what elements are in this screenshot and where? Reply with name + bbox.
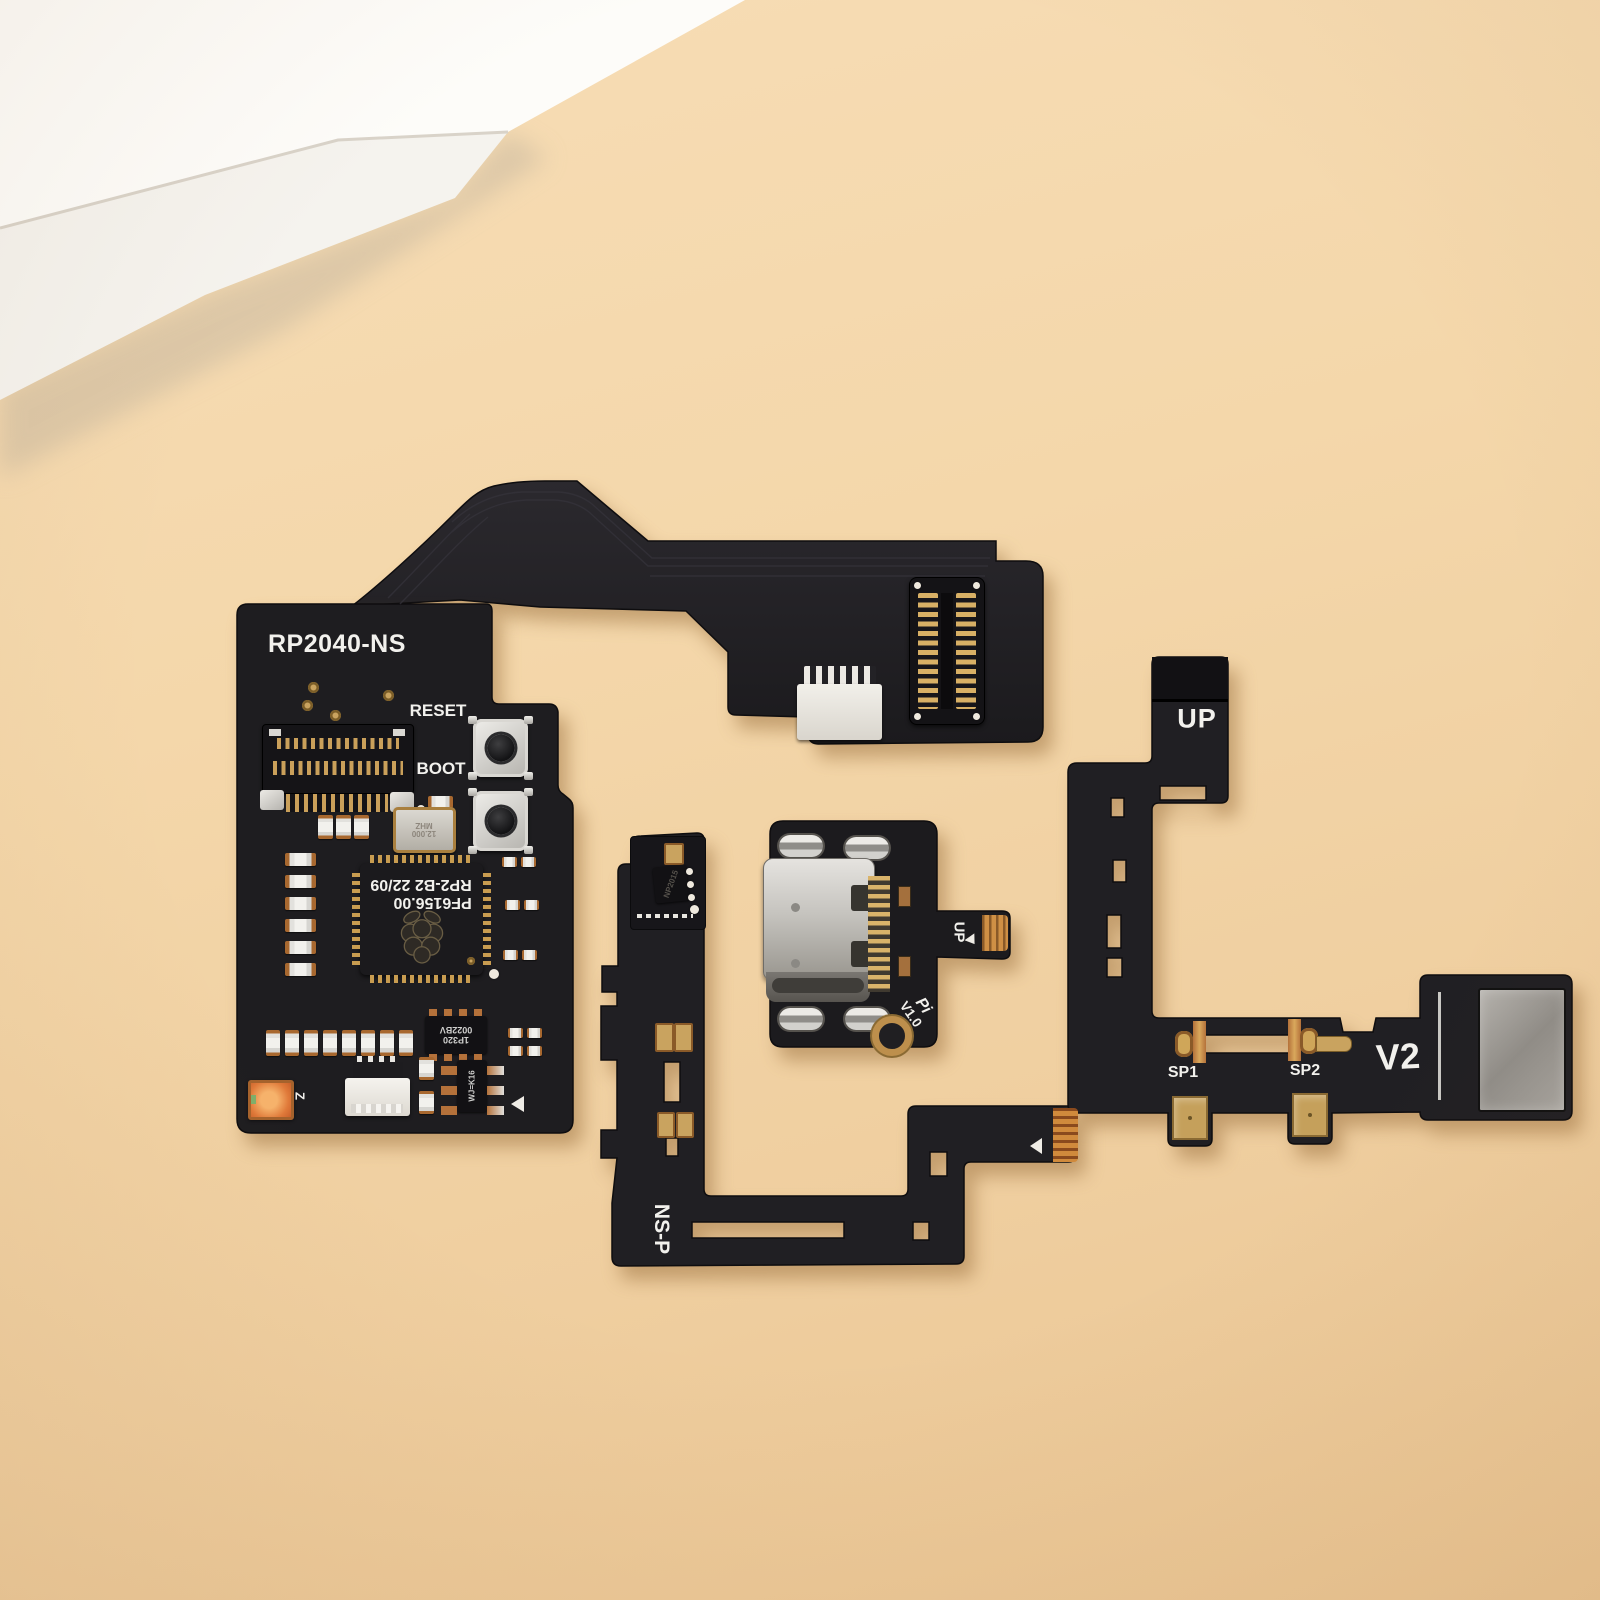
silkscreen-dashes	[637, 914, 693, 918]
smd-resistor	[524, 900, 539, 910]
mount-pad	[779, 1008, 823, 1030]
smd-resistor	[285, 875, 316, 888]
silkscreen-line	[1438, 992, 1441, 1100]
smd-capacitor	[419, 1057, 434, 1080]
v2-version-label: V2	[1375, 1035, 1421, 1079]
gold-fingers-usbc-tail	[982, 915, 1008, 951]
board-shapes	[0, 0, 1600, 1600]
connector-tab	[269, 729, 281, 736]
connector-pins-row	[273, 761, 403, 775]
board-connector	[262, 724, 414, 794]
gold-pin	[1316, 1036, 1352, 1052]
gold-pad	[674, 1023, 693, 1052]
gold-eyelet	[1175, 1031, 1193, 1057]
smd-capacitor	[898, 956, 911, 977]
smd-resistor	[522, 950, 537, 960]
usbc-opening	[766, 972, 870, 1002]
connector-pins-row	[277, 738, 399, 749]
ic-pin	[487, 1066, 504, 1075]
smd-resistor	[527, 1046, 542, 1056]
v2-up-label: UP	[1177, 704, 1217, 735]
sp1-pad	[1172, 1096, 1208, 1140]
reset-label: RESET	[410, 701, 467, 721]
ring-pad	[872, 1016, 912, 1056]
fpc-connector-small	[345, 1062, 410, 1120]
flash-ic: 1P320 0022BV	[425, 1016, 487, 1054]
status-led	[248, 1080, 294, 1120]
fpc-connector-flexend	[797, 660, 882, 740]
smd-resistor	[527, 1028, 542, 1038]
sp1-label: SP1	[1168, 1064, 1198, 1082]
ic-marking: 0022BV	[440, 1025, 473, 1035]
led-marking: Z	[293, 1092, 308, 1100]
ic-pin	[487, 1106, 504, 1115]
smd-resistor	[285, 853, 316, 866]
pin1-dot	[467, 957, 475, 965]
chip-pins-bottom	[370, 975, 473, 983]
silkscreen-triangle-icon	[511, 1096, 524, 1112]
raspberry-logo-icon	[392, 907, 452, 965]
ic-marking: 1P320	[440, 1035, 473, 1045]
transistor-marking: WJ=K16	[468, 1070, 477, 1101]
solder-dot	[688, 894, 695, 901]
crystal-marking: MHZ	[412, 821, 436, 829]
sp2-label: SP2	[1290, 1062, 1320, 1080]
metal-stiffener-plate	[1478, 988, 1566, 1112]
smd-resistor	[502, 857, 517, 867]
gold-pad	[664, 843, 684, 865]
ic-pin	[487, 1086, 504, 1095]
ic-pin	[441, 1106, 457, 1115]
gold-pad	[657, 1112, 675, 1138]
via-hole	[302, 700, 313, 711]
smd-component	[266, 1030, 280, 1056]
boot-label: BOOT	[416, 759, 465, 779]
smd-component	[399, 1030, 413, 1056]
crystal-marking: 12.000	[412, 829, 436, 837]
smd-resistor	[285, 963, 316, 976]
rp2040-chip: PF6156.00 RP2-B2 22/09	[360, 863, 483, 975]
chip-pins-top	[370, 855, 473, 863]
smd-component	[361, 1030, 375, 1056]
smd-resistor	[505, 900, 520, 910]
solder-tab	[1193, 1021, 1206, 1063]
reset-button	[473, 719, 528, 777]
via-hole	[308, 682, 319, 693]
smd-resistor	[508, 1028, 523, 1038]
screw-dimple	[791, 903, 800, 912]
usbc-port	[763, 858, 875, 980]
smd-resistor	[285, 897, 316, 910]
usbc-tail-label: UP	[951, 922, 968, 943]
ic-pin	[441, 1086, 457, 1095]
connector-tab	[393, 729, 405, 736]
solder-dot	[686, 868, 693, 875]
gold-pad	[655, 1023, 674, 1052]
chip-pins-left	[352, 873, 360, 965]
fiducial-dot	[489, 969, 499, 979]
mount-pad	[845, 837, 889, 859]
via-hole	[383, 690, 394, 701]
gold-fingers-microsd	[1053, 1108, 1078, 1162]
smd-resistor	[508, 1046, 523, 1056]
v2-stiffener-tab	[1152, 657, 1228, 702]
solder-dot	[687, 881, 694, 888]
smd-component	[285, 1030, 299, 1056]
smd-component	[304, 1030, 318, 1056]
board-to-board-connector	[909, 577, 985, 725]
ic-pins	[429, 1009, 483, 1016]
boot-button	[473, 791, 528, 851]
solder-pad	[260, 790, 284, 810]
smd-capacitor	[354, 815, 369, 839]
nsp-label: NS-P	[649, 1204, 673, 1254]
screw-dimple	[791, 959, 800, 968]
chip-marking: RP2-B2 22/09	[370, 875, 471, 893]
smd-component	[380, 1030, 394, 1056]
via-hole	[330, 710, 341, 721]
smd-resistor	[285, 919, 316, 932]
product-photo-scene: RP2040-NS RESET BOOT 12.000 MHZ	[0, 0, 1600, 1600]
mount-pad	[779, 835, 823, 857]
crystal-oscillator: 12.000 MHZ	[393, 807, 456, 853]
smd-capacitor	[318, 815, 333, 839]
gold-pad	[676, 1112, 694, 1138]
led-fleck	[251, 1095, 256, 1104]
smd-resistor	[285, 941, 316, 954]
chip-pins-right	[483, 873, 491, 965]
board-title: RP2040-NS	[268, 630, 406, 659]
smd-capacitor	[419, 1091, 434, 1114]
connector-leads	[286, 794, 388, 812]
fiducial-dot	[690, 905, 699, 914]
smd-resistor	[521, 857, 536, 867]
smd-capacitor	[898, 886, 911, 907]
direction-arrow-icon	[1030, 1138, 1042, 1154]
sp2-pad	[1292, 1093, 1328, 1137]
smd-capacitor	[336, 815, 351, 839]
smd-resistor	[503, 950, 518, 960]
ic-pin	[441, 1066, 457, 1075]
smd-component	[342, 1030, 356, 1056]
smd-component	[323, 1030, 337, 1056]
usbc-pins	[868, 876, 890, 992]
